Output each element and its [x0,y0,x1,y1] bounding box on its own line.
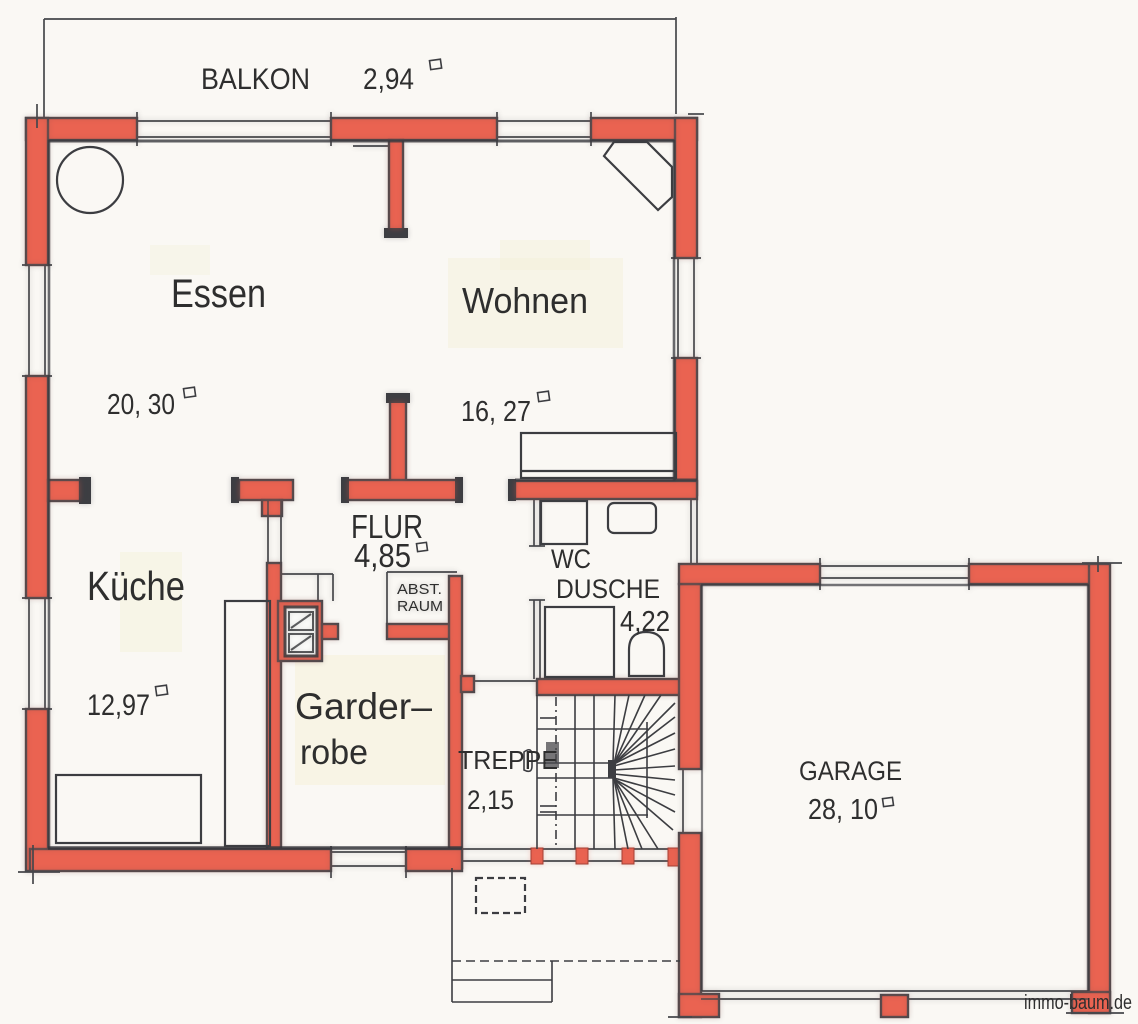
svg-text:28, 10: 28, 10 [808,794,878,826]
svg-text:2,15: 2,15 [467,785,514,815]
svg-text:Wohnen: Wohnen [462,280,588,321]
svg-text:Küche: Küche [87,563,185,609]
svg-text:4,22: 4,22 [620,606,670,638]
svg-text:Garder–: Garder– [295,686,432,727]
svg-text:BALKON: BALKON [201,63,310,96]
svg-text:robe: robe [300,733,368,772]
svg-text:16, 27: 16, 27 [461,396,531,428]
svg-text:DUSCHE: DUSCHE [556,574,660,604]
svg-text:12,97: 12,97 [87,689,150,722]
svg-text:4,85: 4,85 [354,537,411,574]
svg-text:2,94: 2,94 [363,63,414,96]
svg-text:20, 30: 20, 30 [107,389,175,421]
svg-text:TREPPE: TREPPE [458,745,558,775]
svg-text:WC: WC [551,544,591,574]
svg-text:Essen: Essen [171,272,266,316]
svg-text:immo-baum.de: immo-baum.de [1024,992,1132,1014]
svg-text:GARAGE: GARAGE [799,756,902,786]
